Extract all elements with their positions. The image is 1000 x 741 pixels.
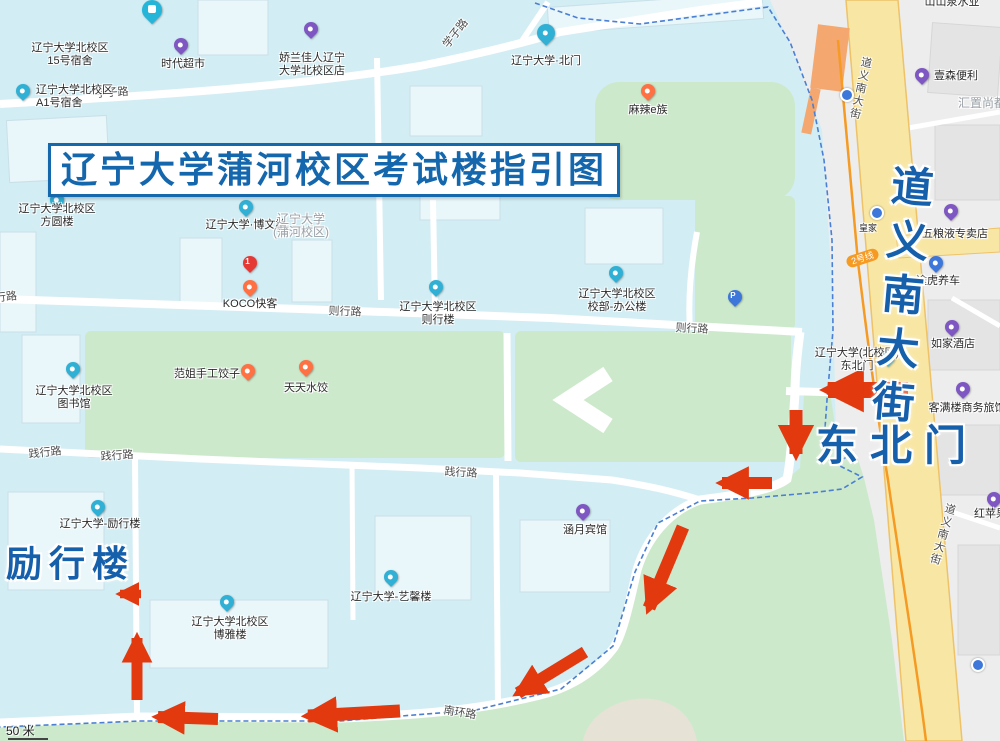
road-label-jianxing-1: 践行路	[28, 442, 62, 461]
poi-label-tiantian[interactable]: 天天水饺	[284, 382, 328, 395]
poi-label-zexing[interactable]: 辽宁大学北校区则行楼	[400, 301, 477, 327]
poi-label-fangyuan[interactable]: 辽宁大学北校区方圆楼	[19, 203, 96, 229]
bus-stop-icon-top[interactable]	[840, 88, 854, 102]
campus-name-label: 辽宁大学(蒲河校区)	[273, 213, 329, 239]
poi-label-admin[interactable]: 辽宁大学北校区校部-办公楼	[579, 288, 656, 314]
poi-label-north-gate[interactable]: 辽宁大学·北门	[511, 55, 581, 68]
poi-label-cosmetics[interactable]: 娇兰佳人辽宁大学北校区店	[279, 52, 345, 78]
poi-label-lixing[interactable]: 辽宁大学-励行楼	[60, 518, 141, 531]
poi-label-mala[interactable]: 麻辣e族	[628, 104, 667, 117]
map-canvas[interactable]: 学子路 学子路 则行路 则行路 则行路 践行路 践行路 践行路 南环路 道义南大…	[0, 0, 1000, 741]
poi-label-yixin[interactable]: 辽宁大学-艺馨楼	[351, 591, 432, 604]
scale-label: 50 米	[6, 722, 35, 739]
poi-label-dorm-15[interactable]: 辽宁大学北校区15号宿舍	[32, 42, 109, 68]
poi-label-koco[interactable]: KOCO快客	[223, 298, 277, 311]
poi-label-hanyue[interactable]: 涵月宾馆	[563, 524, 607, 537]
poi-label-huizhi: 汇置尚都	[958, 97, 1000, 110]
poi-label-yisen[interactable]: 壹森便利	[934, 70, 978, 83]
poi-label-home-inn[interactable]: 如家酒店	[931, 338, 975, 351]
poi-label-fanjie[interactable]: 范姐手工饺子	[156, 368, 240, 381]
poi-label-shanshan: 山山泉水业	[925, 0, 980, 9]
page-title: 辽宁大学蒲河校区考试楼指引图	[48, 143, 620, 197]
lixing-callout: 励行楼	[6, 535, 135, 587]
road-label-jianxing-2: 践行路	[100, 446, 134, 464]
northeast-gate-callout: 东北门	[816, 412, 978, 473]
poi-label-dorm-a1[interactable]: 辽宁大学北校区A1号宿舍	[36, 84, 113, 110]
scale-bar	[8, 738, 48, 740]
dorm-15-pin-icon[interactable]	[142, 0, 162, 34]
poi-label-supermarket[interactable]: 时代超市	[161, 58, 205, 71]
poi-label-red-apple[interactable]: 红苹果大	[974, 508, 1000, 521]
bus-stop-icon-bottom[interactable]	[971, 658, 985, 672]
road-label-zexing-2: 则行路	[675, 319, 709, 337]
poi-label-boya[interactable]: 辽宁大学北校区博雅楼	[192, 616, 269, 642]
poi-label-library[interactable]: 辽宁大学北校区图书馆	[36, 385, 113, 411]
road-label-jianxing-3: 践行路	[444, 463, 478, 481]
road-label-zexing-1: 则行路	[328, 302, 362, 319]
